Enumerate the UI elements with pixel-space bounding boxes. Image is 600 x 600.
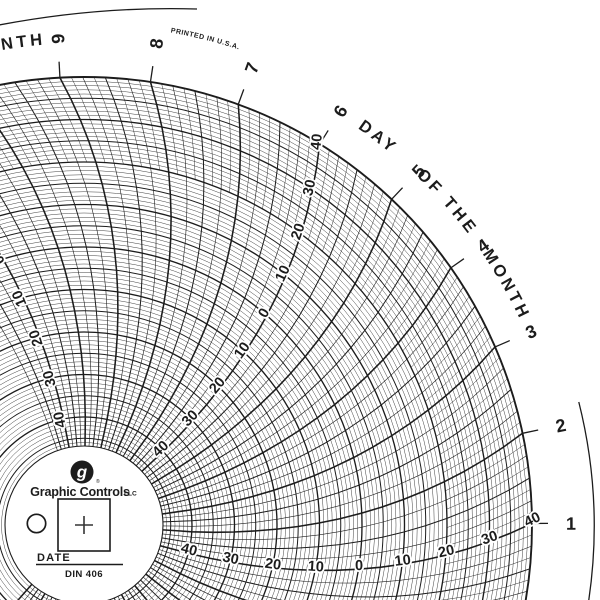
chart-sheet: 123456789MONTHDAYOF THEMONTHPRINTED IN U… bbox=[0, 0, 600, 600]
scale-value-label: 20 bbox=[437, 542, 456, 561]
day-number: 6 bbox=[330, 102, 352, 121]
scale-value-label: 30 bbox=[40, 369, 59, 389]
day-tick bbox=[150, 66, 152, 82]
scale-value-label: 20 bbox=[288, 221, 308, 242]
day-line bbox=[155, 561, 524, 600]
day-number: 1 bbox=[566, 514, 576, 534]
quarter-day-line bbox=[139, 133, 300, 469]
model-number: DIN 406 bbox=[65, 569, 103, 580]
under-sheet-edge-top bbox=[0, 9, 197, 26]
date-label: DATE bbox=[37, 552, 71, 564]
scale-value-label: 0 bbox=[0, 253, 9, 267]
scale-value-label: 40 bbox=[51, 410, 70, 429]
under-sheet-edge-right bbox=[579, 402, 594, 600]
day-tick bbox=[451, 259, 464, 268]
brand-logo-glyph: g bbox=[76, 463, 88, 482]
rim-word: DAY bbox=[355, 117, 401, 158]
half-day-line bbox=[158, 553, 530, 597]
scale-value-label: 20 bbox=[26, 328, 46, 348]
scale-value-label: 40 bbox=[308, 133, 326, 151]
scale-value-label: 10 bbox=[394, 552, 412, 570]
day-tick bbox=[523, 430, 539, 433]
scale-value-label: 20 bbox=[264, 556, 282, 574]
quarter-day-line bbox=[163, 456, 527, 540]
day-tick bbox=[392, 188, 403, 200]
quarter-day-line bbox=[118, 596, 377, 600]
day-number: 7 bbox=[241, 60, 263, 76]
quarter-day-line bbox=[0, 114, 73, 447]
rim-word: MONTH bbox=[479, 246, 533, 323]
circular-recorder-chart: 123456789MONTHDAYOF THEMONTHPRINTED IN U… bbox=[0, 0, 600, 600]
quarter-day-line bbox=[133, 113, 260, 463]
scale-value-label: 30 bbox=[221, 549, 240, 568]
scale-value-label: 30 bbox=[300, 178, 319, 197]
quarter-day-line bbox=[112, 79, 156, 451]
scale-value-label: 10 bbox=[307, 559, 324, 576]
scale-value-label: 10 bbox=[273, 263, 294, 284]
hub: g ® Graphic Controls LLC DATE DIN 406 bbox=[5, 446, 163, 600]
day-number: 2 bbox=[554, 415, 568, 437]
brand-suffix: LLC bbox=[124, 491, 137, 498]
day-tick bbox=[495, 341, 510, 347]
day-number: 9 bbox=[48, 33, 69, 44]
scale-value-label: 30 bbox=[479, 528, 500, 548]
printed-note: PRINTED IN U.S.A. bbox=[170, 28, 241, 52]
day-number: 3 bbox=[523, 321, 540, 343]
rim-word: MONTH bbox=[0, 31, 46, 61]
brand-name: Graphic Controls bbox=[30, 485, 130, 499]
day-tick bbox=[238, 89, 244, 104]
day-number: 8 bbox=[146, 37, 167, 50]
scale-value-label: 40 bbox=[522, 509, 544, 530]
registered-trademark-icon: ® bbox=[96, 478, 100, 485]
pilot-hole-circle bbox=[27, 514, 45, 532]
scale-value-label: 0 bbox=[355, 558, 363, 574]
day-tick bbox=[59, 62, 60, 78]
rim-word: OF THE bbox=[413, 165, 481, 238]
